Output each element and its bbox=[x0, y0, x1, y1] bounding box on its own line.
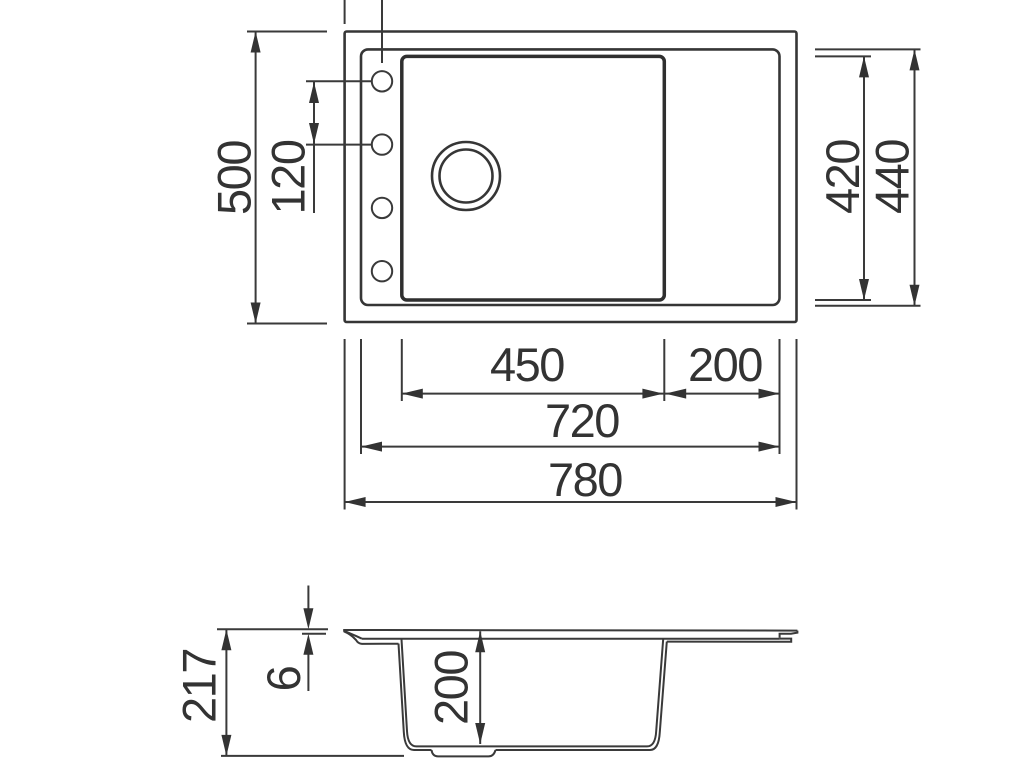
svg-text:780: 780 bbox=[548, 453, 622, 506]
svg-text:500: 500 bbox=[208, 141, 261, 215]
svg-text:120: 120 bbox=[262, 140, 315, 214]
svg-text:217: 217 bbox=[173, 649, 226, 723]
svg-text:420: 420 bbox=[816, 140, 869, 214]
svg-text:200: 200 bbox=[425, 651, 478, 725]
svg-text:440: 440 bbox=[866, 140, 919, 214]
svg-text:200: 200 bbox=[688, 338, 762, 391]
svg-text:450: 450 bbox=[490, 338, 564, 391]
svg-text:720: 720 bbox=[545, 394, 619, 447]
svg-text:6: 6 bbox=[257, 666, 310, 691]
